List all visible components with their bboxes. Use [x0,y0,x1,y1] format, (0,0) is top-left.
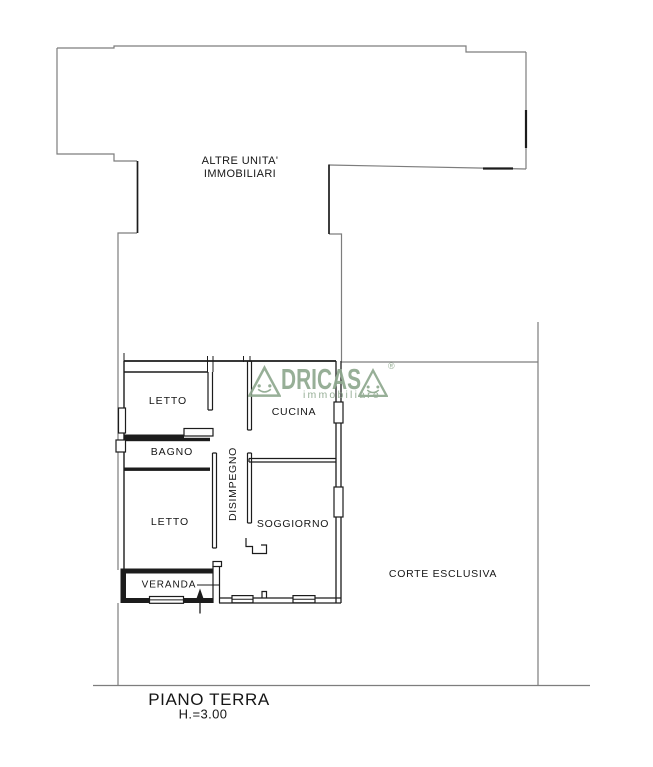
ceiling-height-note: H.=3.00 [179,707,228,722]
hallway-west-wall [213,453,217,548]
room-label-cucina: CUCINA [272,406,316,418]
mid-right-boundary [329,234,342,361]
top-block-left-edge [57,48,137,161]
room-label-letto-bottom: LETTO [151,516,189,528]
letto-top-east-wall [208,372,213,410]
veranda-north-wall [121,569,214,574]
veranda-east-wall-jog [213,562,222,567]
other-units-line1: ALTRE UNITA' [202,155,279,168]
thick-wall-segments [138,110,527,234]
hallway-east-wall [248,453,252,523]
letto-south-wall-step [184,429,213,437]
veranda-south-wall-left [121,598,151,603]
south-wall-stub [262,592,267,599]
room-label-veranda: VERANDA [142,580,197,591]
floorplan-canvas: ALTRE UNITA' IMMOBILIARI LETTO CUCINA BA… [0,0,653,767]
top-block-top-edge [57,46,526,52]
window-bagno-west [116,440,126,452]
logo-registered-mark: ® [388,361,395,371]
letto-top-south-wall [124,435,184,439]
soggiorno-north-wall [249,459,336,463]
bagno-north-wall [124,438,210,441]
other-units-line2: IMMOBILIARI [202,168,279,181]
window-veranda-south [150,597,184,604]
window-cucina-east [334,402,343,423]
veranda-south-wall-right [184,598,214,603]
room-label-disimpegno: DISIMPEGNO [227,447,239,521]
logo-tagline: immobiliare [303,389,381,401]
window-south-2 [293,596,315,603]
window-letto-top-west [119,408,126,433]
watermark-logo: DRICAS ® immobiliare [248,361,398,403]
window-soggiorno-east [334,487,343,517]
veranda-east-wall [213,566,220,603]
logo-house-a-left-icon [248,365,281,398]
room-label-letto-top: LETTO [149,395,187,407]
soggiorno-wall-jog [246,538,267,554]
window-south-1 [232,596,253,603]
veranda-west-wall [121,569,127,604]
bagno-south-wall [124,468,210,471]
room-label-other-units: ALTRE UNITA' IMMOBILIARI [202,155,279,181]
room-label-corte-esclusiva: CORTE ESCLUSIVA [389,568,497,580]
room-label-bagno: BAGNO [151,446,193,458]
north-wall-junction-ticks [124,353,250,372]
room-label-soggiorno: SOGGIORNO [257,518,329,530]
mid-left-boundary [118,233,137,570]
